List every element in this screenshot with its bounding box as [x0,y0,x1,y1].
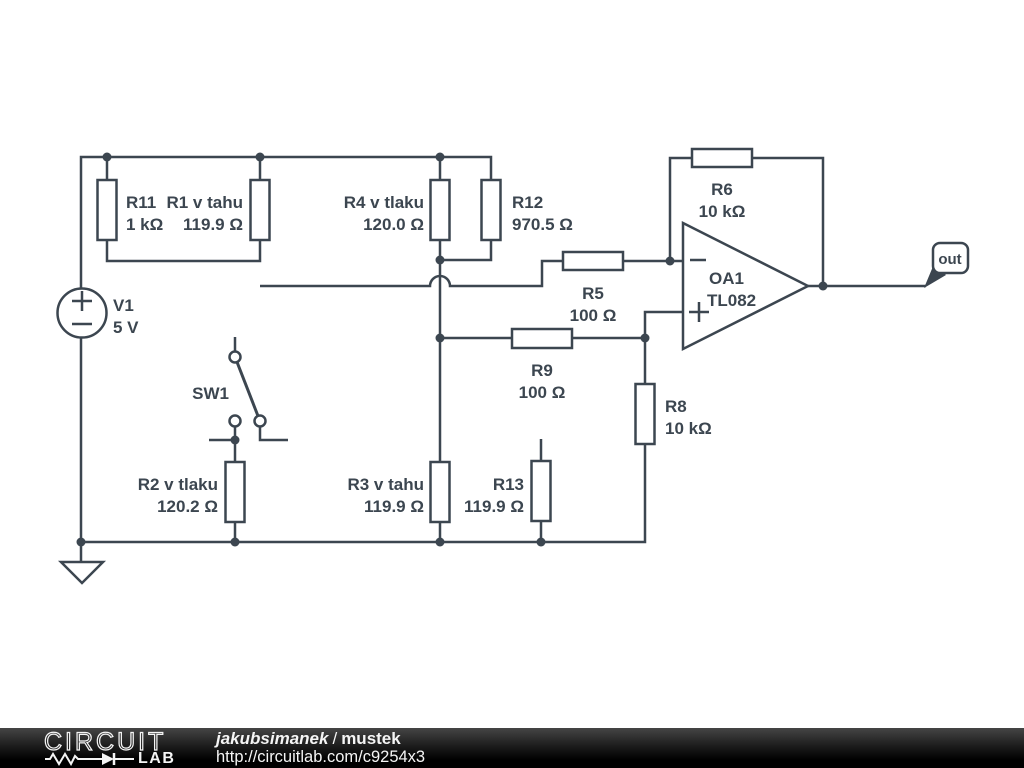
switch-terminal-left [230,416,241,427]
schematic-canvas: out V1 5 V R11 1 kΩ R1 v tahu 119.9 Ω R4… [0,0,1024,728]
label-r4-value: 120.0 Ω [363,215,424,234]
junction-dot [231,436,240,445]
label-oa1-name: OA1 [709,269,744,288]
label-r13-name: R13 [493,475,524,494]
label-r8-value: 10 kΩ [665,419,712,438]
junction-dot [436,153,445,162]
junction-dot [436,256,445,265]
label-r9-value: 100 Ω [519,383,566,402]
label-r3-name: R3 v tahu [347,475,424,494]
label-v1-name: V1 [113,296,134,315]
resistor-r1[interactable] [251,180,270,240]
resistor-r5[interactable] [563,252,623,270]
opamp-triangle [683,223,808,349]
label-r3-value: 119.9 Ω [364,497,424,516]
junction-dot [537,538,546,547]
footer-bar: CIRCUIT LAB jakubsimanek/mustek http://c… [0,728,1024,768]
project-name: mustek [341,729,401,748]
wire-sw1-right-stub [260,427,288,440]
label-r12-name: R12 [512,193,543,212]
author-name: jakubsimanek [216,729,328,748]
resistor-r13[interactable] [532,461,551,521]
opamp-oa1[interactable] [683,223,808,349]
junction-dot [666,257,675,266]
circuitlab-logo-lab: LAB [138,752,175,766]
label-r4-name: R4 v tlaku [344,193,424,212]
junction-dot [77,538,86,547]
label-r5-value: 100 Ω [570,306,617,325]
attribution-separator: / [328,729,341,748]
output-flag-label: out [938,251,961,268]
wire-r11-r1-bottom [107,240,260,261]
label-r2-value: 120.2 Ω [157,497,218,516]
junction-dot [103,153,112,162]
switch-blade [237,362,258,416]
attribution-line: jakubsimanek/mustek [216,729,425,748]
label-oa1-value: TL082 [707,291,756,310]
junction-dot [231,538,240,547]
resistor-r4[interactable] [431,180,450,240]
junction-dot [436,538,445,547]
label-r13-value: 119.9 Ω [464,497,524,516]
voltage-source-v1[interactable] [58,289,107,338]
label-r12-value: 970.5 Ω [512,215,573,234]
label-r1-name: R1 v tahu [166,193,243,212]
junction-dot [819,282,828,291]
wire-r12-bottom [440,240,491,260]
resistor-r9[interactable] [512,329,572,348]
label-r5-name: R5 [582,284,604,303]
junction-dot [436,334,445,343]
switch-terminal-right [255,416,266,427]
junction-dot [256,153,265,162]
resistor-r3[interactable] [431,462,450,522]
switch-sw1[interactable] [230,352,266,427]
label-r2-name: R2 v tlaku [138,475,218,494]
label-r8-name: R8 [665,397,687,416]
wire-plus-input [645,312,683,338]
resistor-r11[interactable] [98,180,117,240]
resistor-r6[interactable] [692,149,752,167]
label-v1-value: 5 V [113,318,139,337]
label-r9-name: R9 [531,361,553,380]
label-sw1-name: SW1 [192,384,229,403]
wire-minus-branch-hop [260,261,563,286]
circuitlab-logo[interactable]: CIRCUIT LAB [44,731,178,766]
label-r11-value: 1 kΩ [126,215,163,234]
resistor-r2[interactable] [226,462,245,522]
ground-symbol [61,562,103,583]
output-flag[interactable]: out [924,243,968,288]
resistor-diode-icon [44,752,138,766]
label-r6-name: R6 [711,180,733,199]
resistor-r12[interactable] [482,180,501,240]
label-r6-value: 10 kΩ [699,202,746,221]
switch-terminal-top [230,352,241,363]
resistor-r8[interactable] [636,384,655,444]
circuit-url[interactable]: http://circuitlab.com/c9254x3 [216,748,425,767]
label-r11-name: R11 [126,193,156,212]
label-r1-value: 119.9 Ω [183,215,243,234]
junction-dot [641,334,650,343]
